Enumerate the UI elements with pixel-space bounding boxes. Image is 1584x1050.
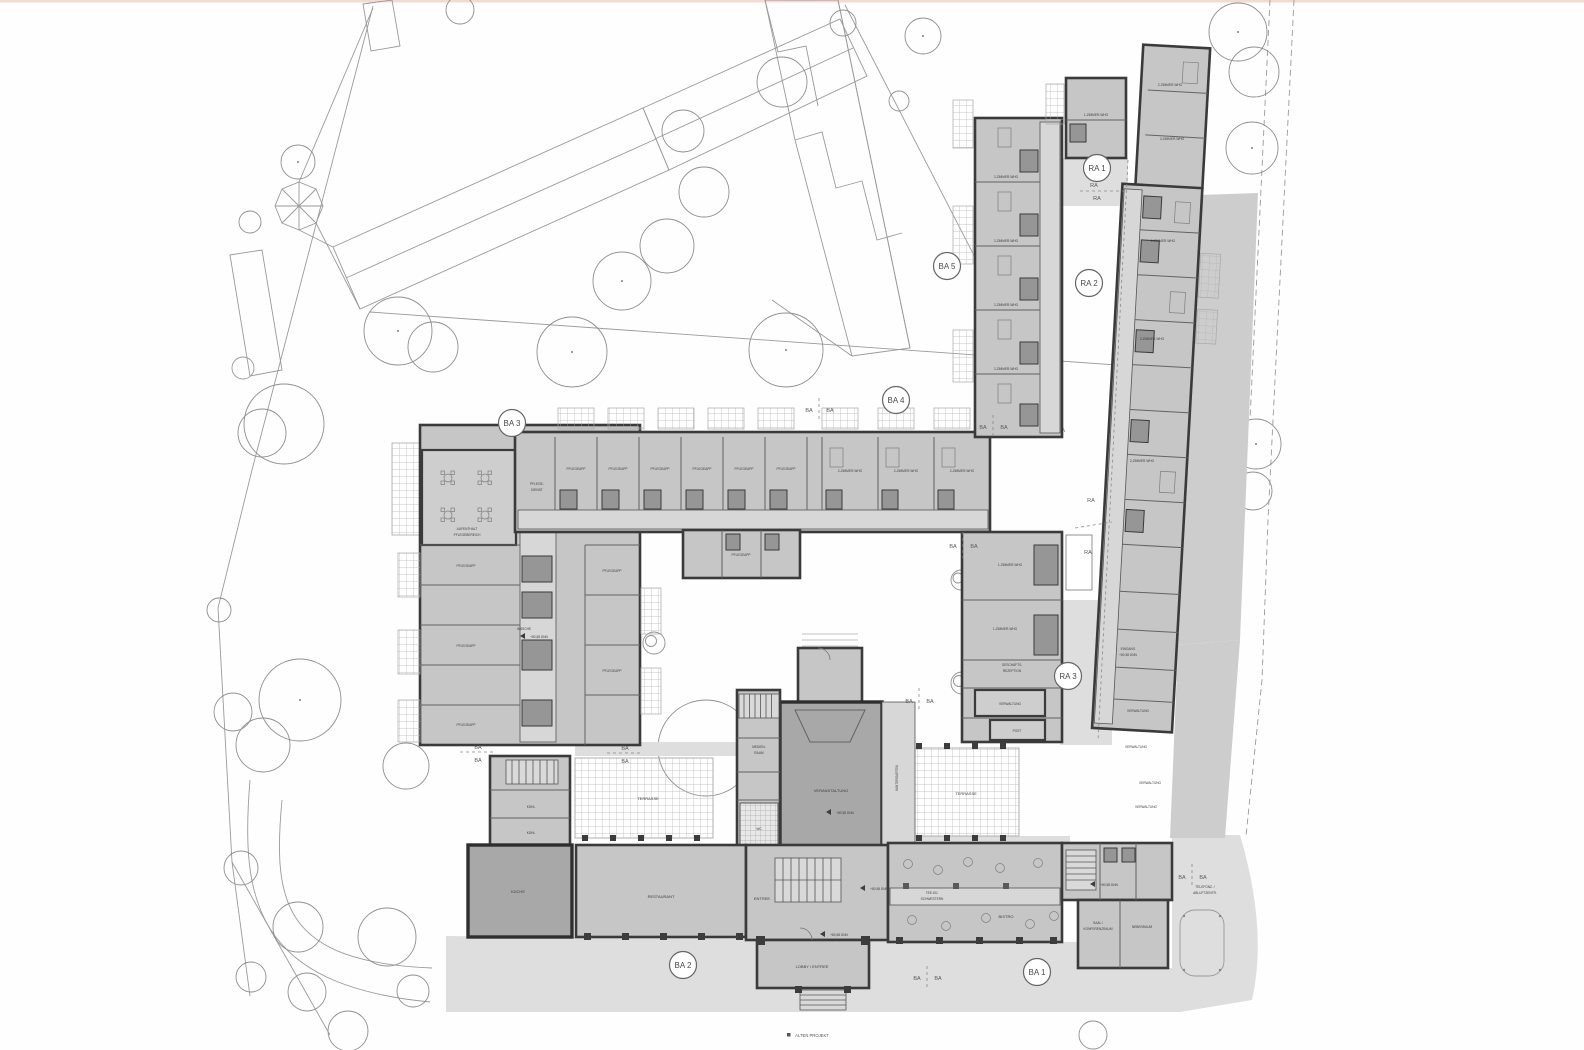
room-label-pflegeapp: PFLEGEAPP — [457, 564, 476, 568]
octagon-tower — [275, 182, 360, 309]
room-label-nebenraum: NEBENRAUM — [1132, 925, 1153, 929]
floor-plan-drawing: BA 3 BA 4 BA 5 RA 1 RA 2 RA 3 BA 2 BA 1 … — [0, 0, 1584, 1050]
room-label-whg2: 2-ZIMMER-WHG — [994, 367, 1019, 371]
room-label-pflegeapp: PFLEGEAPP — [777, 467, 796, 471]
zone-ra2: RA 2 — [1076, 270, 1103, 297]
room-label-rezeption2: REZEPTION — [1003, 669, 1022, 673]
ra-gap — [1066, 535, 1092, 590]
marker-ba: BA — [970, 544, 978, 550]
stair-entree — [775, 858, 841, 902]
room-label-whg3: 3-ZIMMER-WHG — [1160, 137, 1185, 141]
zone-label-ba4: BA 4 — [888, 396, 905, 405]
room-label-pflegeapp: PFLEGEAPP — [735, 467, 754, 471]
site-plan-page: BA 3 BA 4 BA 5 RA 1 RA 2 RA 3 BA 2 BA 1 … — [0, 0, 1584, 1050]
room-label-telefonzentrale2: ABLUFTZENTR. — [1193, 891, 1217, 895]
marker-ba: BA — [474, 745, 482, 751]
room-label-kuehl: KÜHL — [527, 805, 536, 809]
marker-ba: BA — [1178, 875, 1186, 881]
room-label-aufenthalt2: PFLEGEBEREICH — [454, 533, 481, 537]
zone-label-ra1: RA 1 — [1088, 164, 1106, 173]
room-label-saal2: KONFERENZRAUM — [1083, 927, 1112, 931]
zone-label-ba2: BA 2 — [675, 961, 692, 970]
marker-ba: BA — [905, 699, 913, 705]
level-label: +80,58 ÜNN — [830, 933, 848, 937]
room-label-kuehl: KÜHL — [527, 831, 536, 835]
room-label-pflegeapp: PFLEGEAPP — [457, 644, 476, 648]
marker-ra: RA — [1087, 498, 1095, 504]
marker-ba: BA — [826, 408, 834, 414]
marker-ba: BA — [926, 699, 934, 705]
room-label-veranstaltung: VERANSTALTUNG — [814, 788, 849, 793]
level-label: +80,58 ÜNN — [836, 811, 854, 815]
room-label-verwaltung: VERWALTUNG — [999, 702, 1022, 706]
event-hall-complex — [737, 634, 915, 864]
room-label-pflegeapp: PFLEGEAPP — [732, 553, 751, 557]
roof-terraces — [558, 408, 970, 429]
marker-ba: BA — [805, 408, 813, 414]
room-label-teekueche: TEE-KÜ. — [926, 891, 939, 895]
room-label-bistro: BISTRO — [999, 914, 1014, 919]
room-label-verwaltung: VERWALTUNG — [1127, 709, 1150, 713]
room-label-eingang: EINGANG — [1121, 647, 1136, 651]
room-label-entree: ENTREE — [754, 896, 771, 901]
level-label: +80,58 ÜNN — [870, 887, 888, 891]
marker-ra: RA — [1084, 550, 1092, 556]
marker-ba: BA — [979, 425, 987, 431]
zone-label-ba3: BA 3 — [504, 419, 521, 428]
room-label-telefonzentrale: TELEFONZ. / — [1195, 885, 1214, 889]
room-label-wintergarten: WINTERGARTEN — [895, 764, 899, 790]
room-label-pflegeapp: PFLEGEAPP — [603, 669, 622, 673]
room-label-whg2: 2-ZIMMER-WHG — [994, 303, 1019, 307]
zone-label-ba5: BA 5 — [939, 262, 956, 271]
level-label: +80,58 ÜNN — [1100, 883, 1118, 887]
marker-ba: BA — [1000, 425, 1008, 431]
marker-ba: BA — [474, 758, 482, 764]
room-label-lobby: LOBBY / ENTREE — [796, 964, 829, 969]
room-label-pflegedienst: PFLEGE- — [530, 482, 544, 486]
zone-label-ra3: RA 3 — [1059, 672, 1077, 681]
room-label-terrasse-west: TERRASSE — [637, 796, 659, 801]
room-label-pflegeapp: PFLEGEAPP — [609, 467, 628, 471]
marker-ra: RA — [1093, 196, 1101, 202]
room-label-waesche: WÄSCHE — [517, 627, 531, 631]
room-label-pflegeapp: PFLEGEAPP — [651, 467, 670, 471]
room-label-pflegedienst2: DIENST — [531, 488, 543, 492]
room-label-whg2: 2-ZIMMER-WHG — [1130, 459, 1155, 463]
room-label-medienraum2: RAUM — [754, 751, 764, 755]
marker-ba: BA — [1199, 875, 1207, 881]
zone-ba5: BA 5 — [934, 253, 961, 280]
stair-service — [506, 760, 558, 784]
room-label-saal: SAAL / — [1093, 921, 1103, 925]
zone-label-ba1: BA 1 — [1029, 968, 1046, 977]
room-label-restaurant: RESTAURANT — [648, 894, 675, 899]
marker-ba: BA — [621, 746, 629, 752]
room-label-pflegeapp: PFLEGEAPP — [567, 467, 586, 471]
marker-ba: BA — [913, 976, 921, 982]
zone-ba1: BA 1 — [1024, 959, 1051, 986]
zone-ra1: RA 1 — [1084, 155, 1111, 182]
room-label-pflegeapp: PFLEGEAPP — [457, 723, 476, 727]
marker-ba: BA — [621, 759, 629, 765]
stair-hall — [739, 694, 779, 718]
room-label-aufenthalt: AUFENTHALT — [457, 527, 478, 531]
zone-ba2: BA 2 — [670, 952, 697, 979]
room-label-verwaltung: VERWALTUNG — [1135, 805, 1158, 809]
room-label-whg2: 2-ZIMMER-WHG — [1140, 337, 1165, 341]
room-label-whg2: 2-ZIMMER-WHG — [950, 469, 975, 473]
room-label-whg2: 2-ZIMMER-WHG — [994, 239, 1019, 243]
caption-text: ALTEN PROJEKT — [795, 1033, 829, 1038]
room-label-post: POST — [1013, 729, 1022, 733]
room-label-eingang2: +80,58 ÜNN — [1119, 653, 1137, 657]
room-label-verwaltung: VERWALTUNG — [1139, 781, 1162, 785]
room-label-pflegeapp: PFLEGEAPP — [693, 467, 712, 471]
entrance-steps — [800, 990, 846, 1010]
room-label-whg1: 1-ZIMMER-WHG — [1084, 113, 1109, 117]
room-label-wc: WC — [756, 827, 762, 831]
level-label: +80,58 ÜNN — [530, 635, 548, 639]
drawing-caption: ALTEN PROJEKT — [787, 1033, 829, 1038]
room-label-kueche: KÜCHE — [511, 889, 525, 894]
marker-ra: RA — [1090, 183, 1098, 189]
zone-ba3: BA 3 — [499, 410, 526, 437]
room-label-whg2: 2-ZIMMER-WHG — [838, 469, 863, 473]
ba5-wing — [953, 100, 1062, 437]
room-label-verwaltung: VERWALTUNG — [1125, 745, 1148, 749]
zone-ba4: BA 4 — [883, 387, 910, 414]
room-label-terrasse-east: TERRASSE — [955, 791, 977, 796]
room-label-whg2: 2-ZIMMER-WHG — [1158, 83, 1183, 87]
room-label-whg2: 2-ZIMMER-WHG — [894, 469, 919, 473]
existing-buildings — [230, 0, 910, 379]
zone-label-ra2: RA 2 — [1080, 279, 1098, 288]
parking-island — [1180, 910, 1224, 976]
room-label-medienraum: MEDIEN- — [752, 745, 765, 749]
room-label-teekueche2: SCHWESTERN — [921, 897, 944, 901]
zone-ra3: RA 3 — [1055, 663, 1082, 690]
room-label-pflegeapp: PFLEGEAPP — [603, 569, 622, 573]
room-label-whg2: 2-ZIMMER-WHG — [1151, 239, 1176, 243]
room-label-whg1: 1-ZIMMER-WHG — [993, 627, 1018, 631]
marker-ba: BA — [949, 544, 957, 550]
room-label-whg1: 1-ZIMMER-WHG — [998, 563, 1023, 567]
room-label-whg2: 2-ZIMMER-WHG — [994, 175, 1019, 179]
marker-ba: BA — [934, 976, 942, 982]
room-label-rezeption: GESCHÄFTS- — [1002, 663, 1023, 667]
